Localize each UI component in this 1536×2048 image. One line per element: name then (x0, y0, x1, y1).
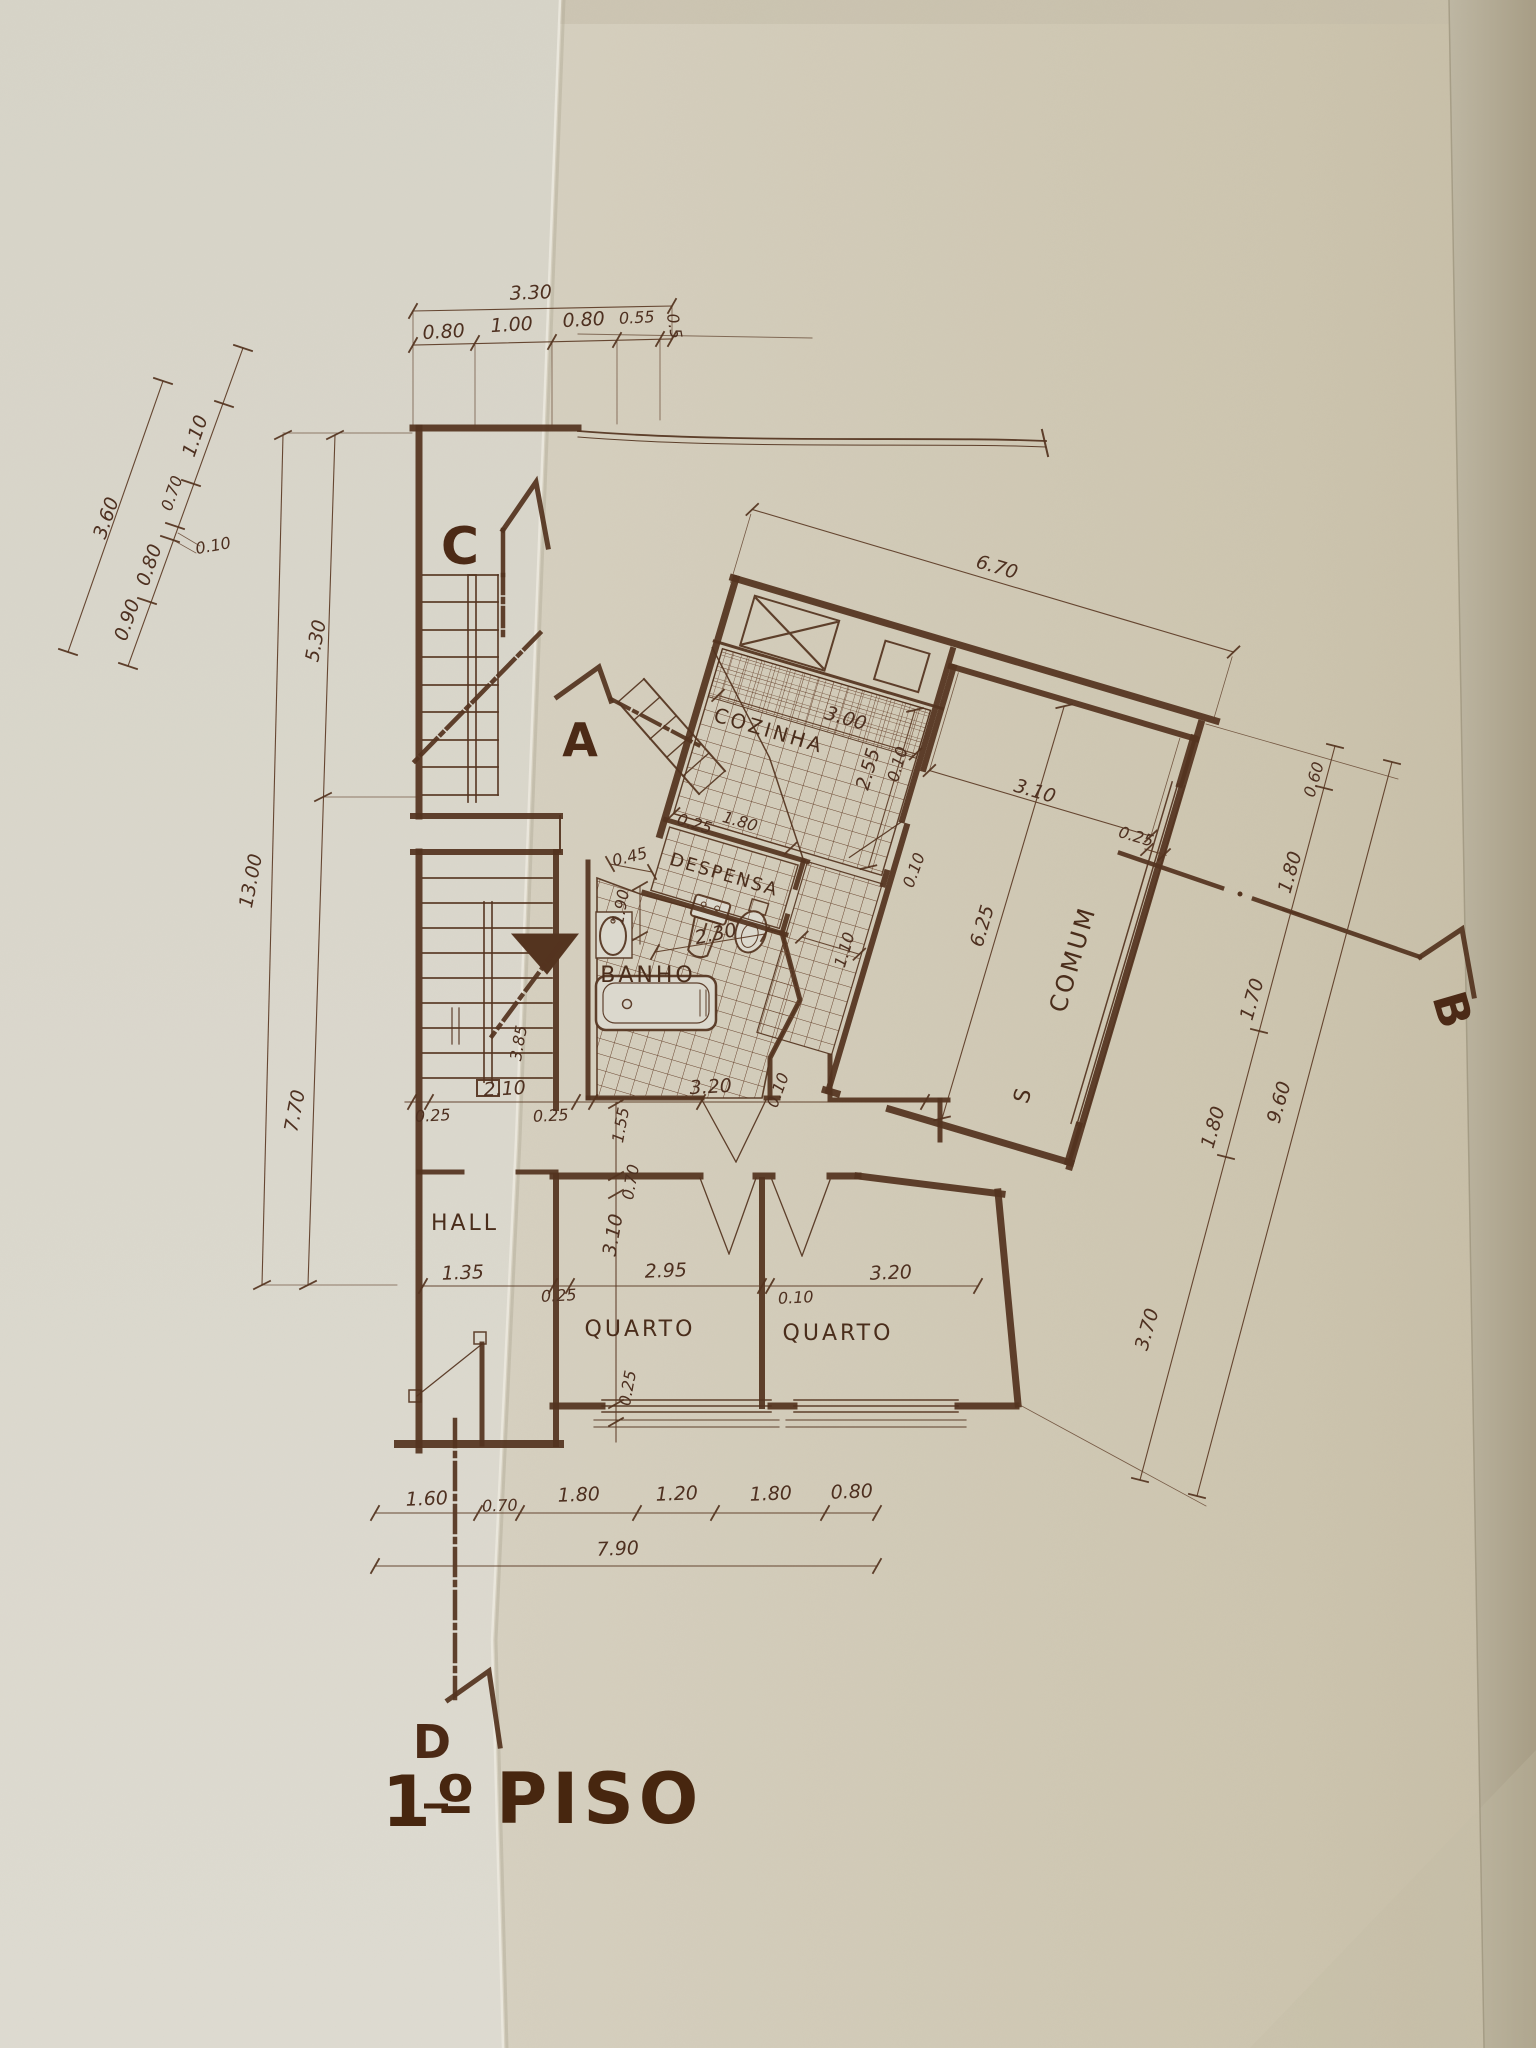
dimension-label: 1.80 (749, 1482, 792, 1505)
dimension-label: 0.80 (830, 1480, 873, 1503)
drawing-title: 1º PISO (382, 1758, 703, 1843)
scanned-floorplan-page: 3.30 0.80 1.00 0.80 0.55 0.5 3.60 1.10 0… (0, 0, 1536, 2048)
floor-plan-drawing: 3.30 0.80 1.00 0.80 0.55 0.5 3.60 1.10 0… (0, 0, 1536, 2048)
room-label-quarto-right: QUARTO (783, 1321, 894, 1346)
section-marker-a: A (562, 713, 598, 767)
room-label-banho: BANHO (600, 963, 695, 988)
dimension-label: 1.20 (655, 1482, 698, 1505)
dimension-label: 0.10 (777, 1287, 814, 1308)
dimension-label: 1.80 (557, 1483, 600, 1506)
dimension-label: 0.80 (562, 308, 605, 332)
dimension-label: 2.95 (644, 1259, 687, 1282)
dimension-label: 0.80 (422, 320, 465, 344)
dimension-label: 1.00 (490, 313, 533, 337)
dimension-label: 1.35 (441, 1261, 484, 1284)
dimension-label: 3.30 (509, 281, 552, 304)
dimension-label: 0.55 (618, 307, 655, 328)
dimension-label: 2.10 (483, 1077, 526, 1101)
room-label-quarto-left: QUARTO (585, 1317, 696, 1342)
dimension-label: 0.25 (532, 1105, 569, 1126)
title-text: PISO (496, 1758, 703, 1840)
dimension-label: 7.90 (596, 1537, 639, 1560)
dimension-label: 0.25 (540, 1285, 577, 1306)
dimension-label: 1.60 (405, 1487, 448, 1510)
room-label-hall: HALL (431, 1211, 499, 1236)
dimension-label: 0.70 (482, 1495, 518, 1515)
dimension-label: 3.20 (869, 1261, 912, 1284)
dimension-label: 3.20 (689, 1075, 732, 1099)
section-marker-c: C (441, 517, 479, 577)
title-number: 1º (382, 1761, 480, 1843)
dimension-label: 0.25 (414, 1105, 451, 1126)
